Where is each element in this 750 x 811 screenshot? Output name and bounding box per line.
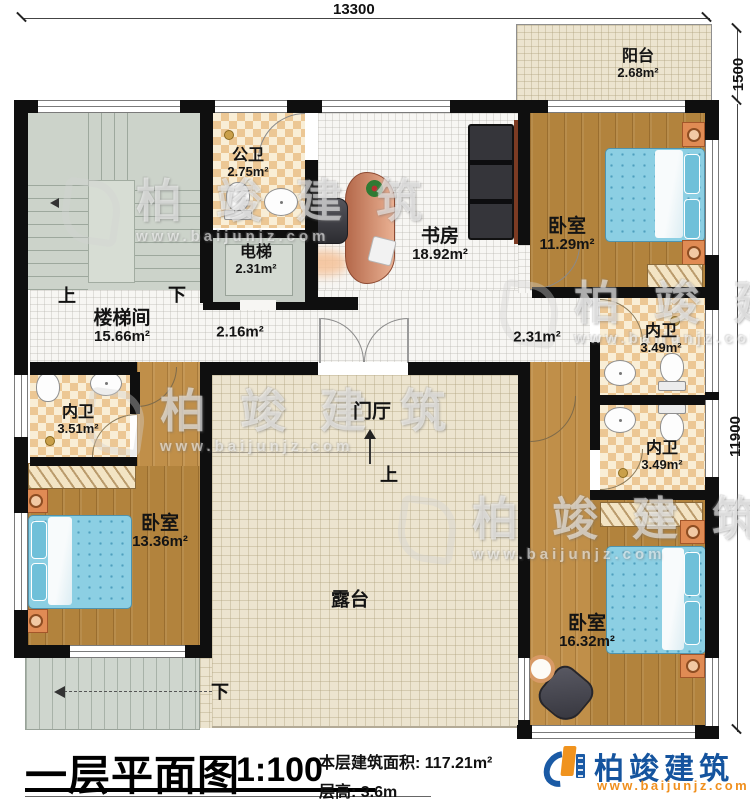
corridor-area-label: 2.16m² — [216, 325, 264, 342]
door-gap-floor — [518, 245, 530, 293]
wall-ensuite2-west — [590, 405, 600, 450]
floor-area-caption: 本层建筑面积: 117.21m² — [319, 749, 492, 773]
room-label-foyer: 门厅 — [353, 401, 391, 422]
wall-bedroom1-west — [518, 113, 530, 245]
floor-plan-canvas: 13300 1500 11900 柏竣建筑 www.baijunjz.com 柏… — [0, 0, 750, 811]
wardrobe — [28, 463, 136, 489]
window — [38, 100, 180, 113]
wall-ensuite-left-south — [30, 457, 137, 466]
entry-arrow-line — [369, 438, 371, 464]
stair-treads-top — [88, 113, 135, 183]
dim-tick — [701, 12, 712, 23]
wall-foyer-north-a — [212, 362, 318, 375]
toilet-icon — [660, 353, 684, 383]
nightstand — [682, 240, 705, 265]
sink-icon — [604, 360, 636, 386]
room-label-ensuite2: 内卫 3.49m² — [641, 440, 682, 472]
window — [532, 725, 695, 739]
wall-ensuite1-west — [590, 342, 600, 395]
wall-foyer-west — [200, 362, 212, 654]
pillow — [31, 521, 47, 559]
window — [215, 100, 287, 113]
balcony-door-window — [548, 100, 685, 113]
nightstand — [680, 520, 705, 544]
stair-down-label: 下 — [168, 281, 186, 307]
room-label-terrace: 露台 — [331, 589, 369, 610]
wall-ensuite-left-east — [130, 372, 140, 414]
exterior-stair-arrow — [54, 686, 65, 698]
company-logo-icon — [545, 742, 591, 796]
light-icon — [224, 130, 234, 140]
pillow — [684, 552, 700, 596]
room-label-ensuite-left: 内卫 3.51m² — [57, 404, 98, 436]
exterior-stair-guide — [64, 691, 212, 692]
exterior-stairs — [25, 650, 200, 730]
entry-door-leaf — [319, 318, 321, 363]
window — [705, 310, 719, 392]
light-icon — [45, 436, 55, 446]
plan-scale: 1:100 — [236, 751, 323, 790]
wall-foyer-north-b — [408, 362, 518, 375]
toilet-icon — [226, 182, 250, 212]
dim-top-value: 13300 — [333, 1, 375, 18]
elevator-door — [240, 300, 276, 310]
stair-treads-right — [135, 190, 200, 290]
window — [322, 100, 450, 113]
wardrobe — [647, 264, 703, 289]
stair-up-label: 上 — [58, 282, 76, 308]
bed-sheet — [662, 548, 684, 650]
foyer-terrace-floor — [212, 375, 518, 728]
wall-hall-south-west — [30, 362, 137, 375]
room-label-bedroom1: 卧室 11.29m² — [539, 216, 594, 254]
tv-cabinet — [468, 124, 514, 240]
window — [705, 658, 719, 726]
dim-right-lower-value: 11900 — [727, 416, 744, 457]
wall-bedroom1-south — [532, 287, 705, 298]
bed-sheet — [48, 517, 72, 605]
window — [518, 658, 530, 720]
toilet-icon — [36, 372, 60, 402]
bed-sheet — [655, 150, 683, 238]
room-label-balcony: 阳台 2.68m² — [617, 48, 658, 80]
sink-icon — [264, 188, 298, 216]
room-label-study: 书房 18.92m² — [412, 226, 468, 264]
nightstand — [682, 122, 705, 147]
window — [705, 400, 719, 477]
toilet-icon — [660, 412, 684, 442]
sink-icon — [604, 407, 636, 433]
entry-door-leaf — [407, 318, 409, 363]
window — [705, 140, 719, 255]
pillow — [31, 563, 47, 601]
entry-arrow-head — [364, 429, 376, 439]
room-label-elevator: 电梯 2.31m² — [235, 244, 276, 276]
stair-arrow — [50, 198, 59, 208]
room-label-public-bath: 公卫 2.75m² — [227, 147, 268, 179]
plan-title: 一层平面图 — [25, 742, 240, 803]
wall-bath-study — [305, 160, 318, 302]
window — [14, 375, 28, 437]
logo-building-bar — [576, 754, 585, 778]
room-label-bedroom3: 卧室 16.32m² — [559, 613, 615, 651]
window — [70, 645, 185, 658]
entry-up-label: 上 — [380, 461, 398, 487]
exterior-down-label: 下 — [211, 678, 229, 704]
room-label-bedroom2: 卧室 13.36m² — [132, 513, 188, 551]
pillow — [684, 601, 700, 645]
foyer-terrace-divider — [212, 452, 518, 453]
stair-landing — [88, 180, 135, 283]
company-website: www.baijunjz.com — [597, 778, 749, 793]
room-label-ensuite1: 内卫 3.49m² — [640, 323, 681, 355]
wall-ensuite-divider — [590, 395, 705, 405]
pillow — [684, 199, 700, 239]
nightstand — [680, 654, 705, 678]
wall-stair-bath — [200, 113, 213, 303]
pillow — [684, 154, 700, 194]
corridor-area-label: 2.31m² — [513, 330, 561, 347]
floor-height-caption: 层高: 3.6m — [319, 778, 397, 802]
balcony-floor — [516, 24, 712, 112]
wall-study-south — [313, 297, 358, 310]
room-label-stairwell: 楼梯间 15.66m² — [93, 308, 150, 346]
plant-icon — [366, 180, 383, 197]
dim-line-top — [22, 18, 710, 19]
wall-ensuite2-south — [590, 490, 705, 500]
window — [14, 513, 28, 610]
dim-right-upper-value: 1500 — [730, 58, 747, 91]
dim-tick — [16, 12, 27, 23]
side-table — [527, 655, 555, 683]
